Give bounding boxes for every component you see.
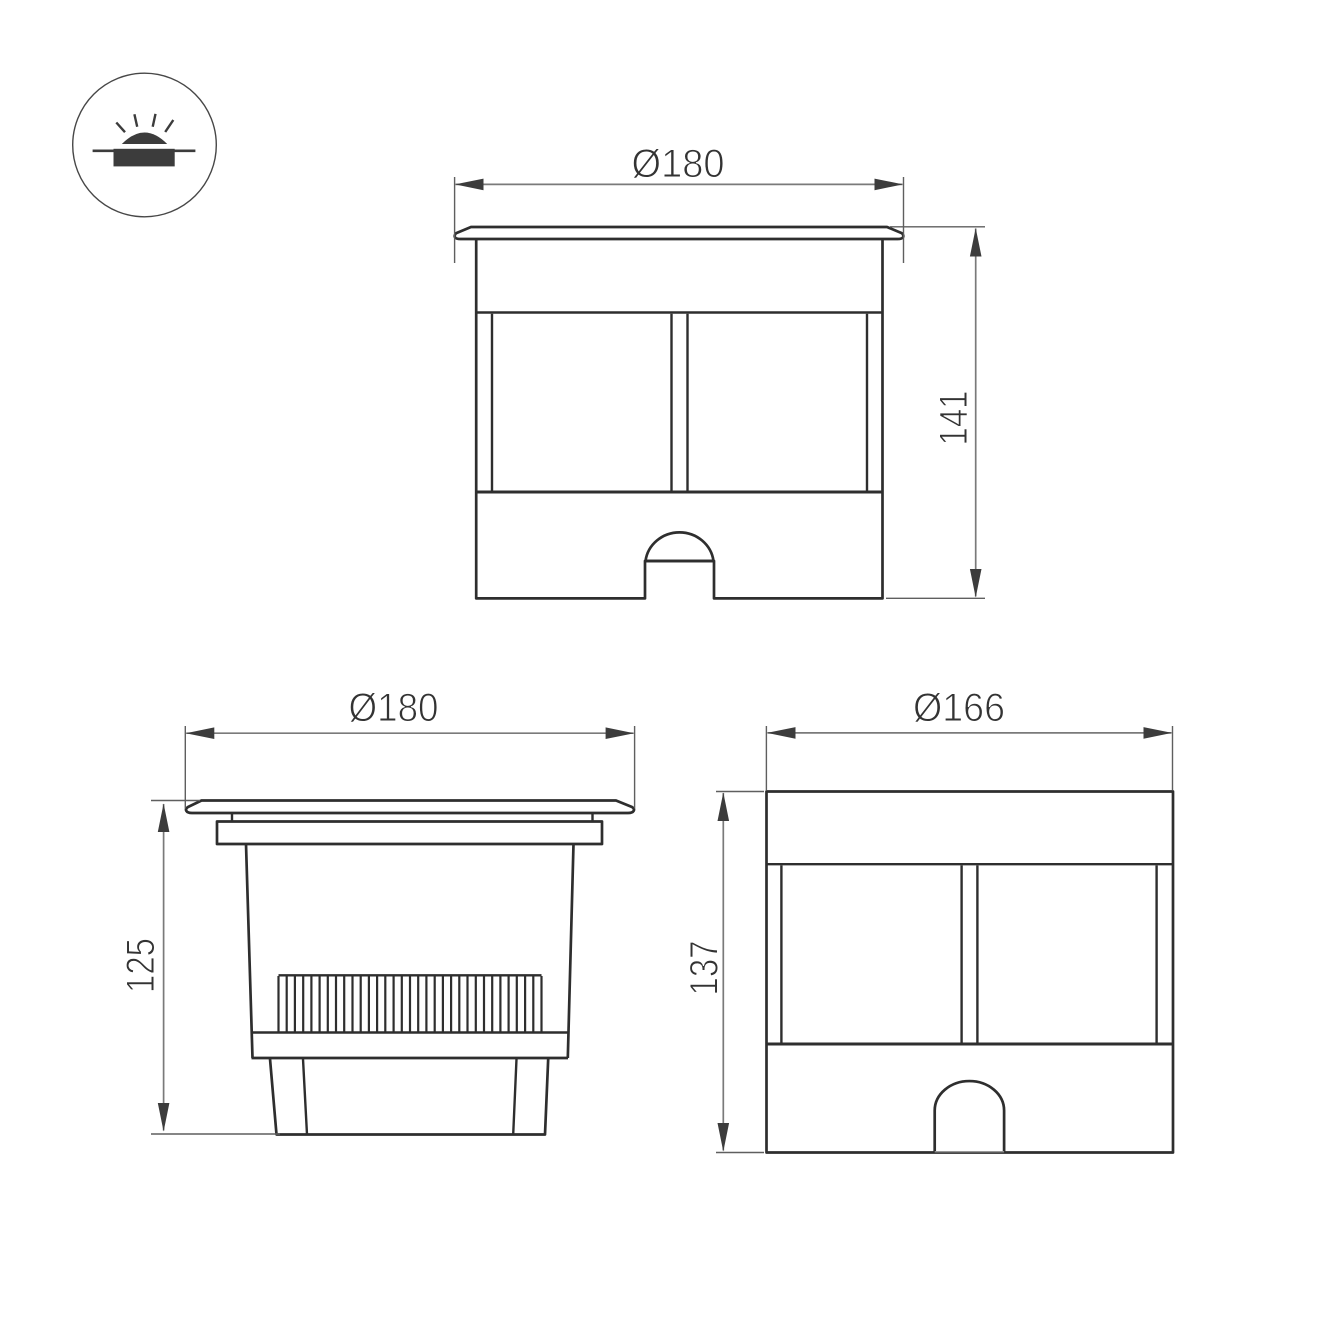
svg-text:125: 125 (119, 938, 163, 993)
svg-text:Ø180: Ø180 (632, 142, 725, 186)
svg-text:Ø166: Ø166 (913, 686, 1005, 730)
svg-text:141: 141 (932, 391, 976, 446)
svg-text:Ø180: Ø180 (349, 686, 439, 730)
svg-text:137: 137 (683, 941, 727, 996)
